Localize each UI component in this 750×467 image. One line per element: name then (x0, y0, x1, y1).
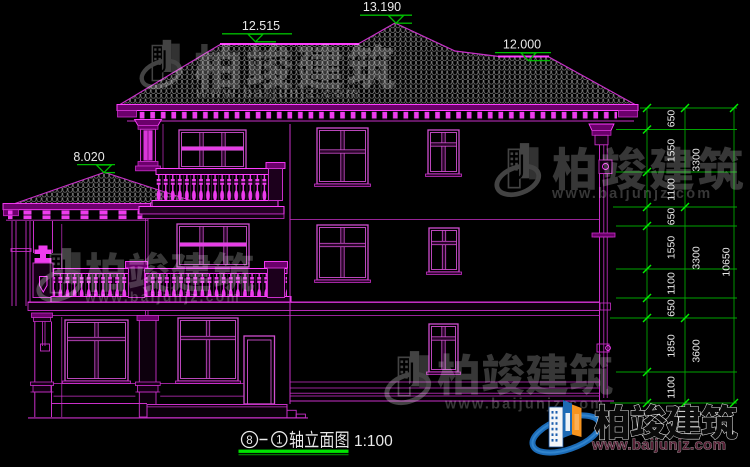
svg-text:12.515: 12.515 (242, 19, 280, 33)
svg-text:1100: 1100 (666, 376, 678, 399)
svg-text:12.000: 12.000 (503, 38, 541, 52)
svg-text:8.020: 8.020 (73, 150, 104, 164)
svg-text:www.baijunjz.com: www.baijunjz.com (195, 85, 361, 102)
svg-text:650: 650 (666, 299, 678, 317)
svg-text:1550: 1550 (666, 236, 678, 260)
svg-text:www.baijunjz.com: www.baijunjz.com (591, 437, 726, 454)
svg-text:13.190: 13.190 (363, 0, 401, 14)
svg-text:650: 650 (666, 110, 678, 128)
svg-text:1100: 1100 (666, 272, 678, 295)
svg-text:8: 8 (246, 435, 252, 447)
svg-text:1850: 1850 (666, 334, 678, 358)
svg-text:10650: 10650 (721, 247, 733, 276)
svg-text:650: 650 (666, 208, 678, 226)
svg-text:www.baijunjz.com: www.baijunjz.com (84, 289, 241, 305)
svg-text:1:100: 1:100 (354, 433, 393, 450)
svg-text:1: 1 (276, 435, 282, 447)
svg-text:www.baijunjz.com: www.baijunjz.com (551, 186, 712, 202)
svg-text:3600: 3600 (691, 339, 703, 363)
svg-text:3300: 3300 (691, 246, 703, 270)
